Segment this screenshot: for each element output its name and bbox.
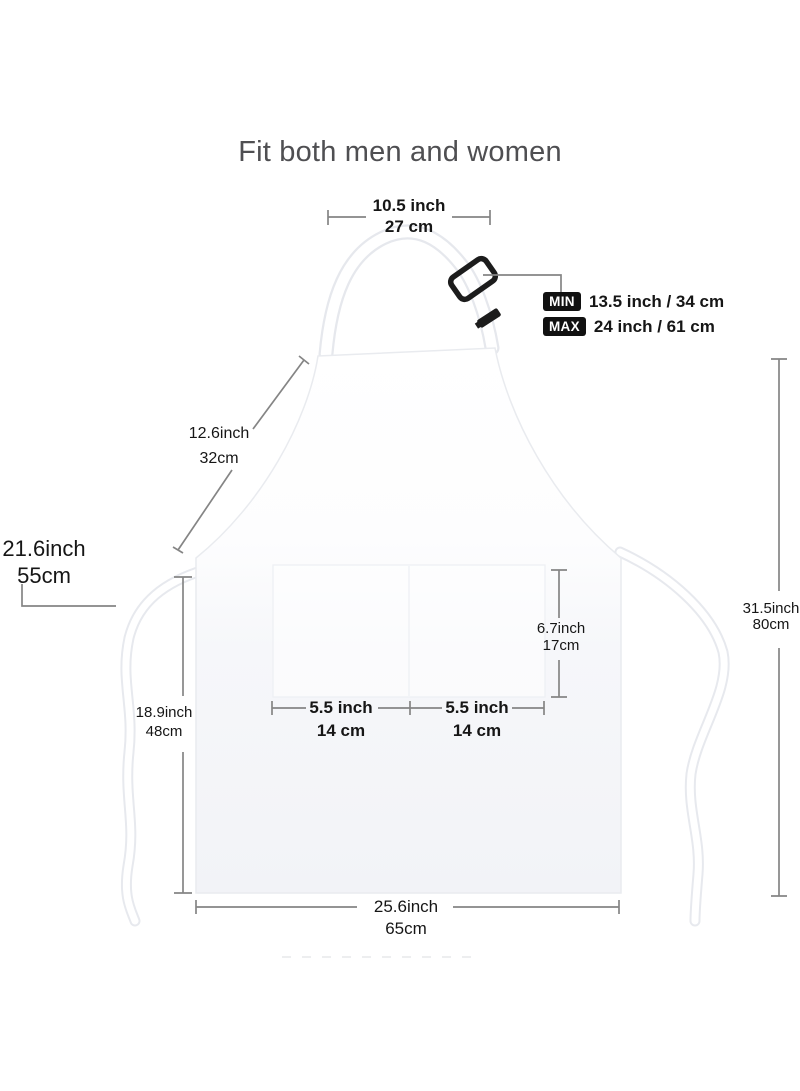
bottom-width-inch: 25.6inch [374,896,438,918]
label-total-height: 31.5inch 80cm [743,601,800,633]
label-neck-strap-width: 10.5 inch 27 cm [373,195,446,237]
pocket-left-inch: 5.5 inch [309,696,372,719]
min-badge: MIN [543,292,581,311]
waist-tie-cm: 55cm [2,562,85,589]
apron-size-diagram: Fit both men and women 10.5 inch 27 cm M… [0,0,800,1091]
neck-strap [326,232,492,354]
bottom-width-cm: 65cm [374,918,438,940]
bib-side-cm: 32cm [189,446,250,471]
pocket-height-cm: 17cm [537,637,585,654]
min-row: MIN 13.5 inch / 34 cm [543,291,724,312]
bib-side-inch: 12.6inch [189,421,250,446]
total-height-inch: 31.5inch [743,601,800,617]
total-height-cm: 80cm [743,617,800,633]
skirt-height-cm: 48cm [136,722,193,741]
label-bib-side-length: 12.6inch 32cm [189,421,250,471]
label-pocket-right-width: 5.5 inch 14 cm [445,696,508,742]
label-skirt-height: 18.9inch 48cm [136,703,193,741]
pocket-right-cm: 14 cm [445,719,508,742]
page-title: Fit both men and women [0,136,800,169]
pocket-left-cm: 14 cm [309,719,372,742]
max-row: MAX 24 inch / 61 cm [543,316,724,337]
neck-strap-width-cm: 27 cm [373,216,446,237]
label-pocket-left-width: 5.5 inch 14 cm [309,696,372,742]
pocket [273,565,545,697]
max-badge: MAX [543,317,586,336]
max-value: 24 inch / 61 cm [594,317,715,337]
neck-strap-adjust-range: MIN 13.5 inch / 34 cm MAX 24 inch / 61 c… [543,291,724,337]
label-waist-tie-length: 21.6inch 55cm [2,535,85,589]
faint-smudge [282,956,480,958]
label-bottom-width: 25.6inch 65cm [374,896,438,940]
neck-strap-width-inch: 10.5 inch [373,195,446,216]
right-waist-tie [620,552,724,921]
waist-tie-inch: 21.6inch [2,535,85,562]
left-waist-tie [126,570,204,921]
pocket-right-inch: 5.5 inch [445,696,508,719]
pocket-height-inch: 6.7inch [537,620,585,637]
min-value: 13.5 inch / 34 cm [589,292,724,312]
label-pocket-height: 6.7inch 17cm [537,620,585,654]
skirt-height-inch: 18.9inch [136,703,193,722]
